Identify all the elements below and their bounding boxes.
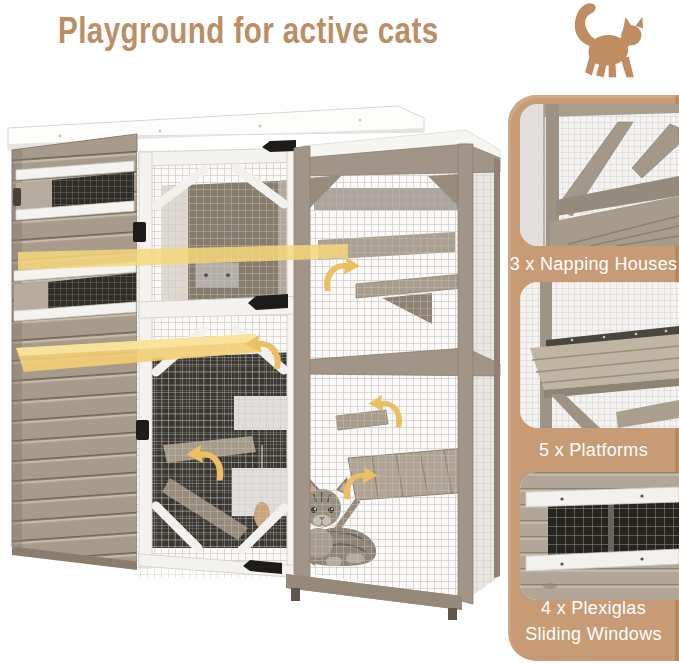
- cat-icon: [560, 0, 654, 84]
- catio-illustration: [0, 0, 505, 664]
- product-hero-image: Playground for active cats: [0, 0, 679, 664]
- feature-photo-sliding-windows: [520, 472, 679, 600]
- feature-label: 4 x Plexiglas Sliding Windows: [516, 595, 671, 653]
- feature-panel: 3 x Napping Houses: [508, 95, 679, 661]
- mesh-enclosure: [286, 130, 500, 620]
- cabin-sliding-window-bottom: [14, 262, 136, 321]
- feature-photo-platforms: [520, 282, 679, 428]
- feature-label: 3 x Napping Houses: [508, 246, 679, 282]
- cabin-sliding-window-top: [16, 161, 134, 220]
- feature-label: 5 x Platforms: [508, 428, 679, 472]
- feature-photo-napping-houses: [520, 104, 679, 246]
